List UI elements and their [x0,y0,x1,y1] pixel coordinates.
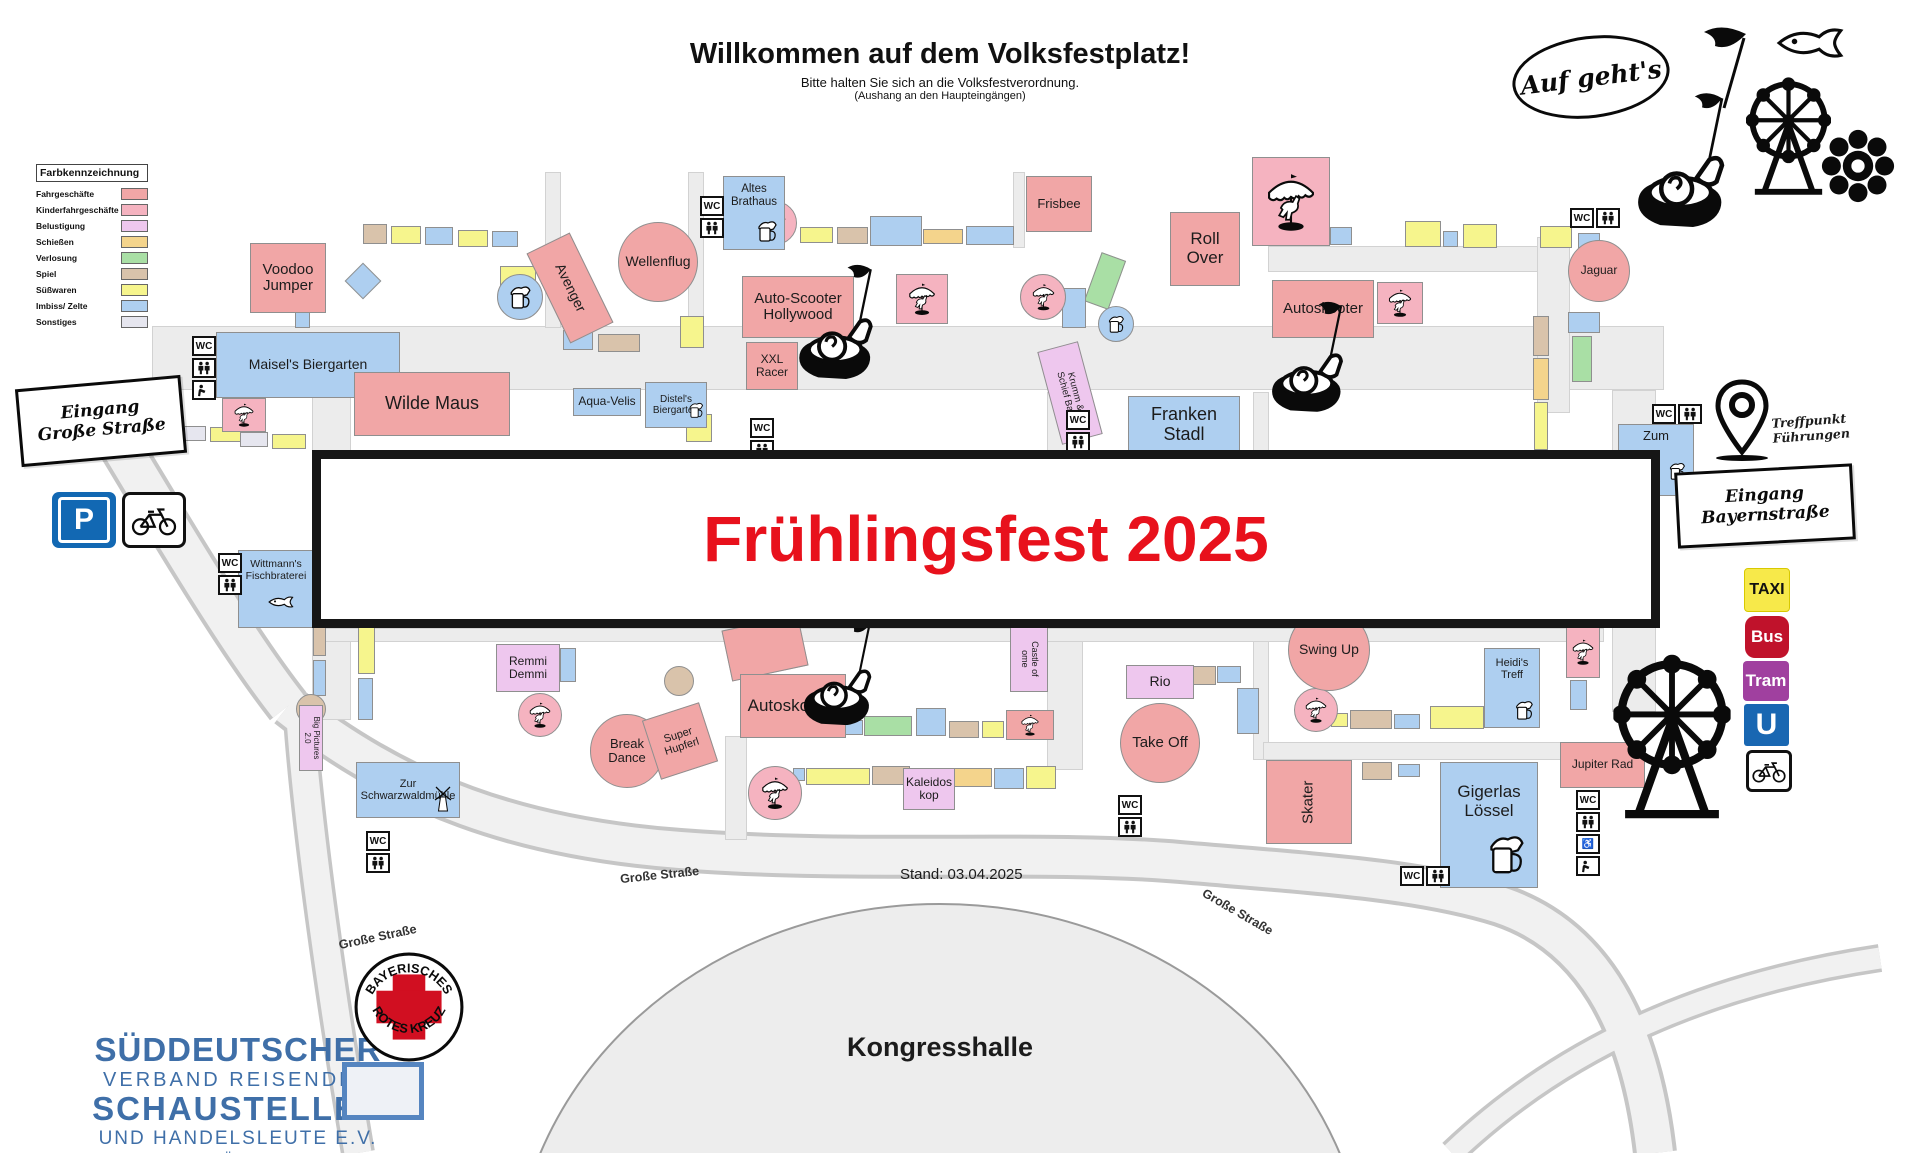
stall [1430,706,1484,729]
walkway-lower [312,628,1604,642]
stall [272,434,306,449]
red-cross-logo: BAYERISCHES ROTES KREUZ [352,950,466,1064]
wc-label: WC [1576,790,1600,810]
stand-franken-stadl: Franken Stadl [1128,396,1240,454]
restroom-persons-icon [1576,812,1600,832]
walkway-lower-east [1263,742,1603,760]
kongresshalle-building [512,904,1368,1153]
biergarten-stall [497,274,543,320]
stall [560,648,576,682]
wc-label: WC [1118,795,1142,815]
beer-mug-icon [1514,698,1534,722]
stall [1394,714,1420,729]
ubahn-sign: U [1744,704,1789,746]
restroom-persons-icon [1596,208,1620,228]
association-logo-frame [342,1062,424,1120]
bicycle-icon [130,504,178,536]
stall [1534,402,1548,450]
stand-frisbee: Frisbee [1026,176,1092,232]
carousel-icon [1387,288,1413,318]
stall [870,216,922,246]
taxi-sign: TAXI [1744,568,1790,612]
entrance-bayernstrasse: Eingang Bayernstraße [1674,463,1856,548]
kids-ride-stall [518,693,562,737]
legend-row: Imbiss/ Zelte [36,300,148,312]
flag-icon [1704,27,1746,47]
kids-ride-stall [1566,626,1600,678]
wc-sign: WC [1652,404,1702,424]
festival-map: Willkommen auf dem Volksfestplatz! Bitte… [0,0,1920,1153]
wc-sign: WC [1118,795,1142,837]
legend-swatch-imbiss [121,300,148,312]
stand-kaleidoskop: Kaleidos kop [903,768,955,810]
stand-big-pictures: Big Pictures 2.0 [299,705,323,771]
stall [313,660,326,696]
carousel-icon [1304,695,1328,725]
restroom-persons-icon [1118,817,1142,837]
legend-row: Spiel [36,268,148,280]
stand-castle-of-label: Castle of ome [1019,641,1039,677]
stand-xxl-racer: XXL Racer [746,342,798,390]
fair-rides-illustration [1628,16,1908,236]
stand-wellenflug: Wellenflug [618,222,698,302]
legend-title: Farbkennzeichnung [36,164,148,182]
ferris-wheel-illustration [1612,650,1732,820]
carousel-icon [760,775,790,811]
walkway-alley [1013,172,1025,248]
event-title: Frühlingsfest 2025 [703,502,1269,576]
stall [923,229,963,244]
stall [1350,710,1392,729]
stall [598,334,640,352]
stand-jaguar: Jaguar [1568,240,1630,302]
legend-swatch-belustigung [121,220,148,232]
kids-ride-stall [1377,282,1423,324]
stall [1217,666,1241,683]
wc-label: WC [1066,410,1090,430]
accessible-icon [1576,856,1600,876]
carousel-icon [1264,170,1318,234]
legend-row: Belustigung [36,220,148,232]
stall [806,768,870,785]
kids-ride-stall [896,274,948,324]
stall [1533,316,1549,356]
wc-sign: WC [1570,208,1620,228]
wc-sign: WC [1066,410,1090,452]
restroom-persons-icon [1426,866,1450,886]
event-banner: Frühlingsfest 2025 [312,450,1660,628]
legend: Farbkennzeichnung Fahrgeschäfte Kinderfa… [36,164,148,332]
stall [994,768,1024,789]
legend-label: Sonstiges [36,317,77,327]
legend-row: Verlosung [36,252,148,264]
legend-row: Schießen [36,236,148,248]
legend-row: Fahrgeschäfte [36,188,148,200]
stall [837,227,868,244]
wc-label: WC [218,553,242,573]
parking-p: P [58,497,110,543]
legend-label: Belustigung [36,221,85,231]
tram-sign: Tram [1743,661,1789,701]
restroom-persons-icon [366,853,390,873]
stall [492,231,518,247]
kids-ride-stall [1294,688,1338,732]
stand-castle-of: Castle of ome [1010,626,1048,692]
wc-label: WC [1570,208,1594,228]
stall [358,626,375,674]
kids-ride-stall [1020,274,1066,320]
wc-label: WC [700,196,724,216]
stall [949,721,979,738]
stall [1568,312,1600,333]
legend-swatch-fahrgeschaefte [121,188,148,200]
kids-ride-stall [748,766,802,820]
walkway-alley [725,736,747,840]
stall [458,230,488,247]
stall [800,227,833,243]
carousel-icon [1031,282,1056,312]
stand-voodoo-jumper: Voodoo Jumper [250,243,326,313]
legend-row: Kinderfahrgeschäfte [36,204,148,216]
page-title: Willkommen auf dem Volksfestplatz! [560,38,1320,71]
legend-label: Süßwaren [36,285,77,295]
stand-remmi-demmi: Remmi Demmi [496,644,560,692]
stand-wittmanns-fischbraterei: Wittmann's Fischbraterei [238,550,314,628]
wc-label: WC [1652,404,1676,424]
wc-sign: WC [366,831,390,873]
stand-roll-over: Roll Over [1170,212,1240,286]
stall [966,226,1014,245]
stand-take-off: Take Off [1120,703,1200,783]
parking-sign: P [52,492,116,548]
auf-gehts-text: Auf geht's [1519,54,1663,100]
legend-swatch-verlosung [121,252,148,264]
stall [240,432,268,447]
wc-label: WC [366,831,390,851]
carousel-icon [1571,637,1595,667]
walkway-northeast [1268,246,1538,272]
page-subtitle-2: (Aushang an den Haupteingängen) [560,90,1320,102]
kids-ride-stall [222,398,266,432]
stall [313,626,326,656]
stand-rio: Rio [1126,665,1194,699]
stall [1192,666,1216,685]
legend-row: Sonstiges [36,316,148,328]
stall [1405,221,1441,247]
page-header: Willkommen auf dem Volksfestplatz! Bitte… [560,38,1320,102]
wc-sign: WC♿ [1576,790,1600,876]
bike-station-sign [1746,750,1792,792]
beer-mug-icon [688,400,704,420]
page-subtitle: Bitte halten Sie sich an die Volksfestve… [560,75,1320,90]
wc-sign: WC [1400,866,1450,886]
stall [982,721,1004,738]
legend-swatch-schiessen [121,236,148,248]
meeting-point-pin-icon [1712,378,1772,462]
carousel-icon [528,700,552,730]
stall [1533,358,1549,400]
stall [1570,680,1587,710]
bumper-car-illustration [795,262,880,380]
ride-stall [1006,710,1054,740]
stand-aqua-velis: Aqua-Velis [573,388,641,416]
legend-row: Süßwaren [36,284,148,296]
kongresshalle-label: Kongresshalle [790,1032,1090,1063]
restroom-persons-icon [700,218,724,238]
legend-label: Imbiss/ Zelte [36,301,88,311]
carousel-icon [233,402,255,428]
map-date: Stand: 03.04.2025 [900,866,1023,883]
stall [391,226,421,244]
legend-swatch-suesswaren [121,284,148,296]
legend-label: Spiel [36,269,56,279]
stall [1237,688,1259,734]
stall [916,708,946,736]
stall [425,227,453,245]
beer-mug-icon [756,218,778,244]
stall [680,316,704,348]
accessible-icon [192,380,216,400]
restroom-persons-icon [1678,404,1702,424]
stand-skater-label: Skater [1301,780,1318,823]
wc-label: WC [750,418,774,438]
wc-sign: WC [192,336,216,400]
stand-wilde-maus: Wilde Maus [354,372,510,436]
bicycle-sign [122,492,186,548]
restroom-persons-icon [1066,432,1090,452]
stall [1398,764,1420,777]
carousel-icon [1020,713,1040,737]
bumper-car-illustration [1268,300,1350,412]
beer-mug-icon [508,283,532,311]
stall [1330,227,1352,245]
stall [1540,226,1572,248]
legend-label: Verlosung [36,253,77,263]
windmill-icon [432,786,454,812]
stall [358,678,373,720]
wc-sign: WC [218,553,242,595]
stall [1443,231,1458,247]
restroom-persons-icon [192,358,216,378]
stall [363,224,387,244]
legend-label: Schießen [36,237,74,247]
stand-skater: Skater [1266,760,1352,844]
entrance-grosse-strasse: Eingang Große Straße [15,375,187,467]
legend-label: Kinderfahrgeschäfte [36,205,119,215]
stall [1026,766,1056,789]
bumper-car-illustration [800,618,878,726]
legend-swatch-kinderfahrgeschaefte [121,204,148,216]
stall [952,768,992,787]
association-line4: UND HANDELSLEUTE E.V. [52,1128,424,1149]
beer-mug-icon [1107,313,1125,335]
legend-swatch-spiel [121,268,148,280]
bus-sign: Bus [1745,616,1789,658]
fish-icon [268,594,296,610]
wheelchair-icon: ♿ [1576,834,1600,854]
stall [1463,224,1497,248]
wc-label: WC [192,336,216,356]
legend-label: Fahrgeschäfte [36,189,94,199]
carousel-ride [1252,157,1330,246]
biergarten-stall [1098,306,1134,342]
stall [1572,336,1592,382]
stall [1362,762,1392,780]
bicycle-icon [1751,759,1787,783]
beer-mug-icon [1486,830,1526,878]
legend-swatch-sonstiges [121,316,148,328]
stand-zum-label-top: Zum [1643,429,1669,443]
carousel-icon [907,281,937,317]
wc-sign: WC [700,196,724,238]
stall [664,666,694,696]
restroom-persons-icon [218,575,242,595]
wc-label: WC [1400,866,1424,886]
